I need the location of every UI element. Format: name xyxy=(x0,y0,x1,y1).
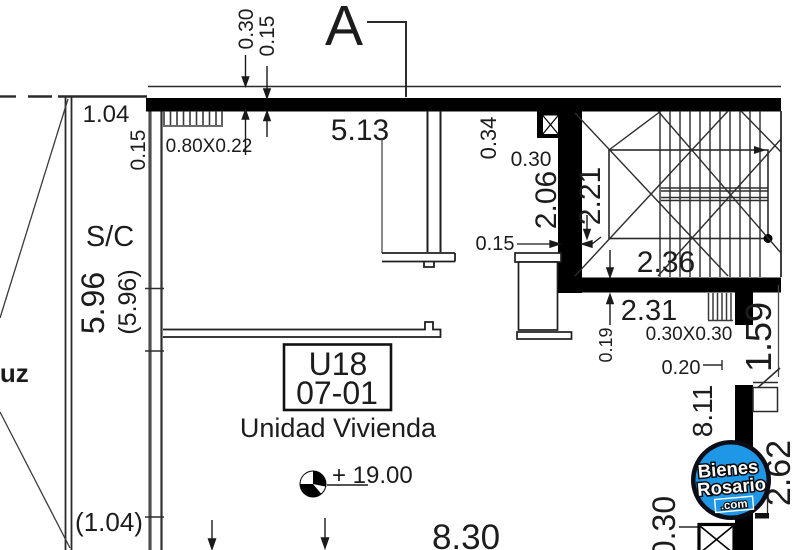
svg-text:0.30: 0.30 xyxy=(235,9,258,50)
svg-text:S/C: S/C xyxy=(86,221,134,253)
svg-text:5.13: 5.13 xyxy=(331,114,389,147)
svg-text:0.19: 0.19 xyxy=(596,327,616,362)
svg-text:0.80X0.22: 0.80X0.22 xyxy=(166,136,253,157)
svg-text:8.11: 8.11 xyxy=(687,385,718,437)
svg-text:Unidad Vivienda: Unidad Vivienda xyxy=(240,413,437,443)
svg-text:0.30: 0.30 xyxy=(646,496,682,550)
svg-text:0.30: 0.30 xyxy=(511,148,552,171)
svg-text:1.59: 1.59 xyxy=(738,302,779,372)
svg-text:07-01: 07-01 xyxy=(296,375,378,411)
svg-text:0.15: 0.15 xyxy=(476,233,515,255)
svg-text:8.30: 8.30 xyxy=(432,518,500,550)
svg-text:0.15: 0.15 xyxy=(127,130,150,171)
svg-text:2.06: 2.06 xyxy=(530,171,563,229)
svg-text:0.34: 0.34 xyxy=(476,117,501,160)
svg-text:2.31: 2.31 xyxy=(621,295,677,327)
svg-text:(5.96): (5.96) xyxy=(114,269,142,334)
svg-text:0.30X0.30: 0.30X0.30 xyxy=(646,324,733,345)
svg-text:1.04: 1.04 xyxy=(83,101,130,128)
svg-text:+ 19.00: + 19.00 xyxy=(332,462,413,489)
svg-text:0.20: 0.20 xyxy=(662,357,701,379)
svg-text:A: A xyxy=(325,0,363,58)
svg-text:0.15: 0.15 xyxy=(256,16,279,57)
svg-text:2.21: 2.21 xyxy=(574,167,607,225)
svg-text:5.96: 5.96 xyxy=(75,272,111,334)
svg-text:Luz: Luz xyxy=(0,358,29,388)
svg-text:(1.04): (1.04) xyxy=(75,507,143,537)
svg-text:2.36: 2.36 xyxy=(637,246,695,279)
svg-text:.com: .com xyxy=(720,498,748,512)
